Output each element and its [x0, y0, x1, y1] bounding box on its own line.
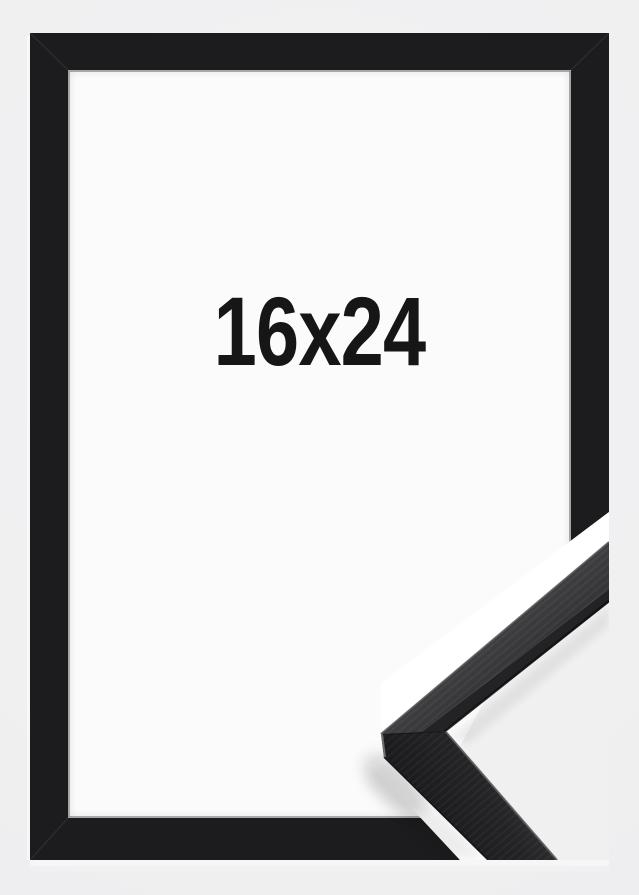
product-photo: 16x24 [0, 0, 639, 895]
floor-reflection [30, 860, 609, 866]
frame-left-edge-highlight [27, 36, 30, 860]
size-label: 16x24 [64, 283, 575, 380]
frame-photo-illustration [0, 0, 639, 895]
